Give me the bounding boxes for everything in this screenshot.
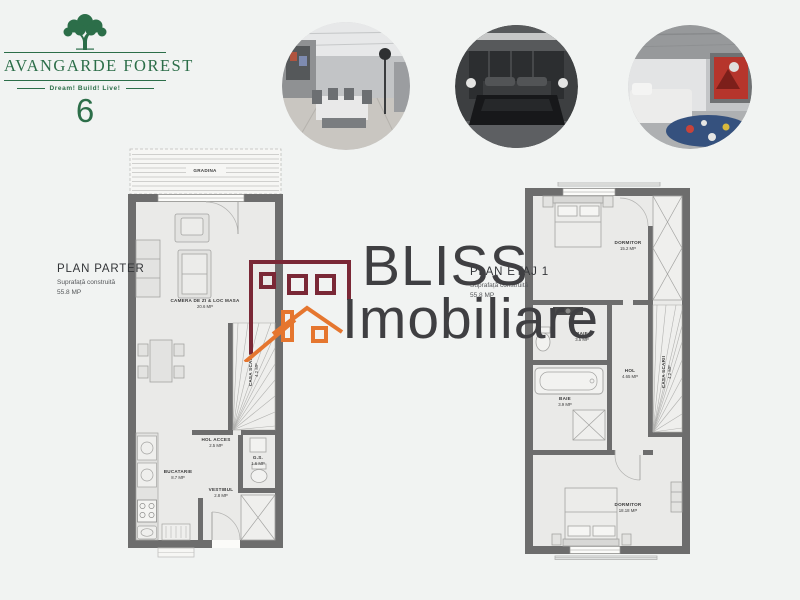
watermark-line2: Imobiliare (342, 293, 599, 345)
plan-parter-subtitle: Suprafață construită (57, 279, 115, 286)
floor-plan-etaj: DORMITOR 15.2 MP BAIE 3.5 MP HOL 4.65 MP… (525, 182, 690, 560)
room-label-hol-acces: HOL ACCES 2.5 MP (201, 437, 230, 449)
plan-parter-area: 55.8 MP (57, 289, 81, 296)
storage-closet (241, 495, 275, 540)
plan-parter-title: PLAN PARTER (57, 263, 145, 275)
room-label-gs: G.S. 1.6 MP (251, 455, 265, 467)
brand-number: 6 (4, 94, 166, 127)
tagline-dash-right (126, 88, 154, 89)
plan-parter-title-block: PLAN PARTER Suprafață construită 55.8 MP (57, 263, 145, 298)
brand-title: AVANGARDE FOREST (4, 52, 166, 81)
watermark-line1: BLISS (362, 240, 529, 292)
brand-tagline: Dream! Build! Live! (50, 85, 121, 92)
room-label-hol: HOL 4.65 MP (622, 368, 638, 380)
photo-living-room-render (282, 22, 410, 150)
room-label-baie-2: BAIE 3.9 MP (558, 396, 572, 408)
room-label-dormitor-1: DORMITOR 15.2 MP (615, 240, 642, 252)
room-label-gradina: GRADINA (193, 168, 216, 174)
listing-sheet: AVANGARDE FOREST Dream! Build! Live! 6 (0, 0, 800, 600)
room-label-bucatarie: BUCATARIE 8.7 MP (164, 469, 193, 481)
room-label-camera-de-zi: CAMERA DE ZI & LOC MASA 20.6 MP (170, 298, 239, 310)
photo-kids-room-render (628, 25, 752, 149)
room-label-casa-scarii-etaj: CASA SCARII 4.2 MP (661, 356, 673, 388)
tagline-dash-left (17, 88, 45, 89)
tree-icon (56, 12, 114, 50)
brand-logo: AVANGARDE FOREST Dream! Build! Live! 6 (4, 12, 166, 127)
room-label-vestibul: VESTIBUL 2.8 MP (209, 487, 234, 499)
bliss-watermark: BLISS Imobiliare (240, 248, 600, 368)
photo-bedroom-render (455, 25, 578, 148)
room-label-dormitor-2: DORMITOR 18.18 MP (615, 502, 642, 514)
